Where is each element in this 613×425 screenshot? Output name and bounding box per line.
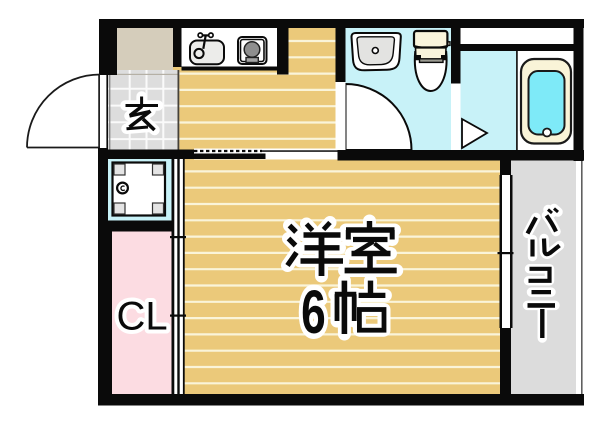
svg-text:CL: CL (117, 295, 168, 339)
svg-text:6: 6 (301, 278, 326, 347)
